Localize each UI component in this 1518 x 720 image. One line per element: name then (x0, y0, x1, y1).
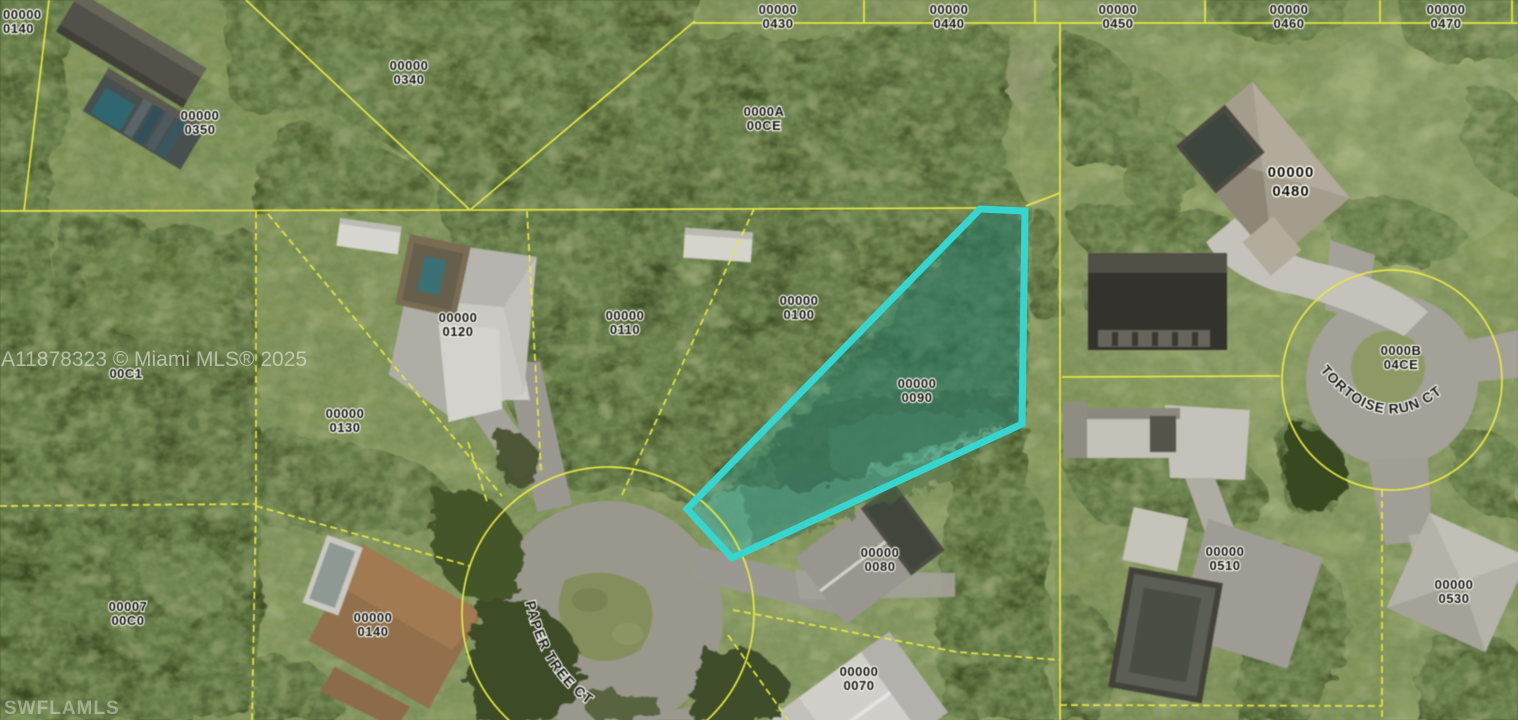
svg-text:0090: 0090 (902, 390, 933, 405)
svg-text:0340: 0340 (394, 72, 425, 87)
svg-text:00C0: 00C0 (111, 613, 144, 628)
svg-text:0510: 0510 (1210, 558, 1241, 573)
svg-text:0140: 0140 (3, 21, 34, 36)
svg-text:00000: 00000 (780, 293, 819, 308)
svg-text:A11878323 © Miami MLS® 2025: A11878323 © Miami MLS® 2025 (1, 348, 307, 371)
svg-text:04CE: 04CE (1384, 357, 1419, 372)
svg-text:00000: 00000 (439, 310, 478, 325)
svg-text:0470: 0470 (1431, 16, 1462, 31)
svg-text:0070: 0070 (844, 678, 875, 693)
svg-text:0480: 0480 (1272, 183, 1309, 200)
svg-text:0130: 0130 (330, 420, 361, 435)
svg-text:00000: 00000 (861, 545, 900, 560)
svg-text:00CE: 00CE (747, 118, 782, 133)
svg-text:00000: 00000 (354, 610, 393, 625)
svg-text:00000: 00000 (930, 2, 969, 17)
svg-text:0080: 0080 (865, 559, 896, 574)
svg-text:00000: 00000 (1268, 164, 1315, 181)
svg-text:SWFLAMLS: SWFLAMLS (4, 698, 120, 719)
svg-text:0120: 0120 (443, 324, 474, 339)
svg-text:00000: 00000 (1270, 2, 1309, 17)
svg-text:00000: 00000 (1427, 2, 1466, 17)
svg-text:0460: 0460 (1274, 16, 1305, 31)
svg-text:00000: 00000 (1099, 2, 1138, 17)
svg-text:0000A: 0000A (744, 104, 785, 119)
svg-text:00000: 00000 (326, 406, 365, 421)
svg-text:00000: 00000 (390, 58, 429, 73)
svg-text:0100: 0100 (784, 307, 815, 322)
svg-text:00000: 00000 (3, 7, 42, 22)
svg-text:0000B: 0000B (1381, 343, 1422, 358)
svg-text:00000: 00000 (1435, 577, 1474, 592)
svg-text:0140: 0140 (358, 624, 389, 639)
svg-text:00000: 00000 (1206, 544, 1245, 559)
svg-text:00000: 00000 (606, 308, 645, 323)
svg-text:00000: 00000 (181, 108, 220, 123)
svg-text:00000: 00000 (759, 2, 798, 17)
svg-text:0110: 0110 (610, 322, 640, 337)
svg-text:00000: 00000 (898, 376, 937, 391)
svg-text:0430: 0430 (763, 16, 794, 31)
svg-text:0450: 0450 (1103, 16, 1134, 31)
svg-text:00000: 00000 (840, 664, 879, 679)
svg-text:0530: 0530 (1439, 591, 1470, 606)
svg-text:0440: 0440 (934, 16, 965, 31)
svg-text:0350: 0350 (185, 122, 216, 137)
svg-text:00007: 00007 (109, 599, 148, 614)
